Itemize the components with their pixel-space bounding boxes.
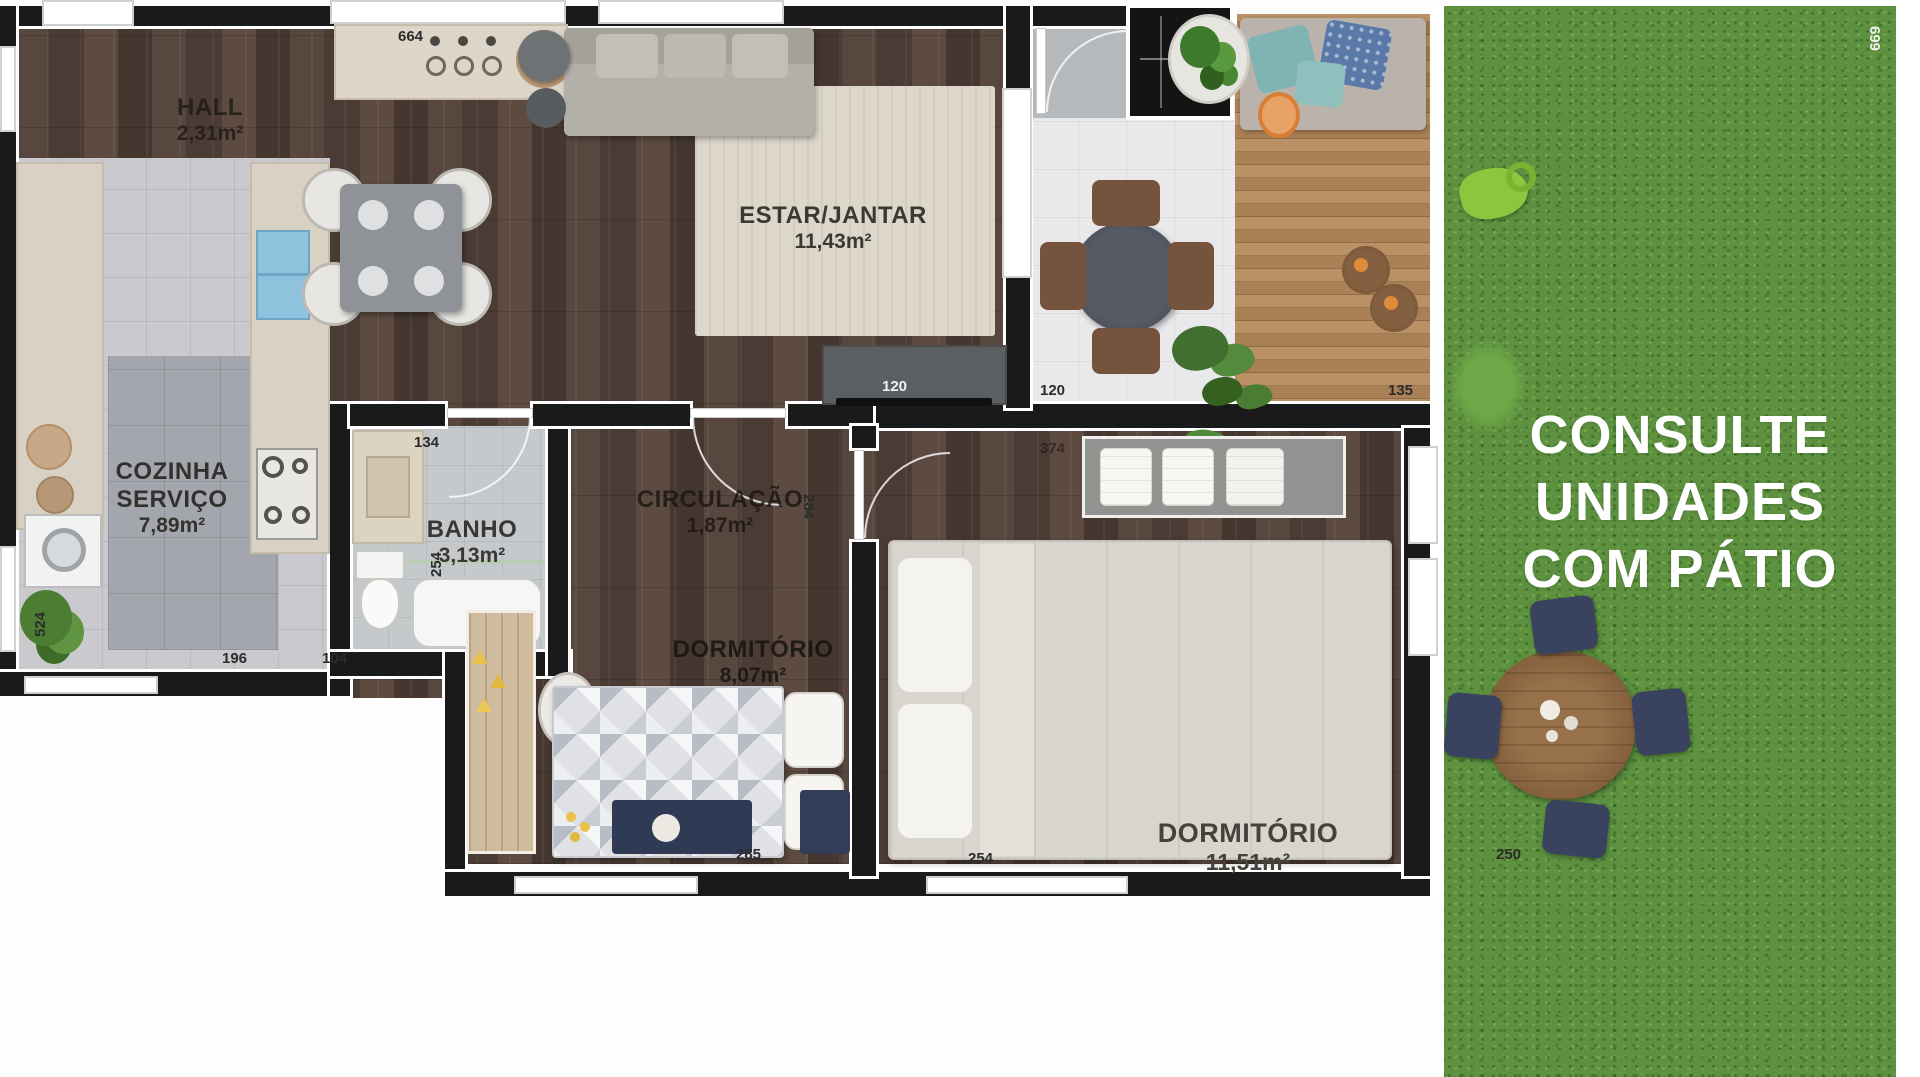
- garden-chair-north: [1529, 594, 1599, 655]
- dim-bath-bottom: 104: [322, 650, 347, 667]
- patio-chair-west: [1040, 242, 1086, 310]
- patio-table: [1072, 222, 1182, 332]
- wall-bath-top-left: [350, 404, 445, 426]
- folded-clothes: [1162, 448, 1214, 506]
- stove-burner: [292, 506, 310, 524]
- dim-patio-grass: 250: [1496, 846, 1521, 863]
- daybed-tray: [1258, 92, 1300, 138]
- room-name-kitchen-2: SERVIÇO: [92, 486, 252, 514]
- patio-chair-north: [1092, 180, 1160, 226]
- garden-chair-south: [1541, 799, 1610, 859]
- room-name-living: ESTAR/JANTAR: [728, 202, 938, 230]
- dim-dorm2-door: 374: [1040, 440, 1065, 457]
- deck-cup: [1354, 258, 1368, 272]
- room-area-bedroom1: 8,07m²: [653, 664, 853, 688]
- dim-grass-right: 699: [1866, 26, 1883, 51]
- grass-plant-tuft: [1448, 338, 1528, 434]
- kitchen-bowl: [36, 476, 74, 514]
- dining-plate: [358, 266, 388, 296]
- shaft-line: [1160, 16, 1162, 108]
- room-area-bath: 3,13m²: [402, 544, 542, 568]
- duck-toys-icon: [566, 812, 576, 822]
- dim-service-wall: 524: [32, 612, 49, 637]
- sofa-cushion: [596, 34, 658, 78]
- wall-step: [445, 652, 465, 876]
- wall-dorm-divider-stub: [852, 426, 876, 448]
- room-label-circulation: CIRCULAÇÃO 1,87m²: [620, 486, 820, 538]
- dim-deck-edge: 135: [1388, 382, 1413, 399]
- room-name-hall: HALL: [150, 94, 270, 122]
- side-table: [518, 30, 570, 82]
- room-name-kitchen-1: COZINHA: [92, 458, 252, 486]
- dim-patio-floor: 120: [1040, 382, 1065, 399]
- bedroom2-blanket-fold: [980, 544, 1034, 856]
- room-label-bedroom2: DORMITÓRIO 11,51m²: [1098, 818, 1398, 876]
- toilet-bowl: [360, 578, 400, 630]
- bedroom1-pillow: [784, 692, 844, 768]
- dining-plate: [414, 200, 444, 230]
- window-laundry-bottom: [24, 676, 158, 694]
- window-bedroom2-right-a: [1408, 446, 1438, 544]
- room-area-circulation: 1,87m²: [620, 514, 820, 538]
- patio-chair-south: [1092, 328, 1160, 374]
- kitchen-sink-divider: [256, 273, 310, 276]
- kitchen-counter-left: [16, 162, 104, 530]
- tv: [836, 398, 992, 406]
- cooktop-burner: [454, 56, 474, 76]
- toilet-tank: [355, 550, 405, 580]
- tv-console: [822, 345, 1007, 405]
- dim-kitchen-bottom: 196: [222, 650, 247, 667]
- garden-chair-west: [1443, 692, 1502, 760]
- origami-decor-icon: [476, 698, 492, 712]
- bedroom2-pillow: [896, 702, 974, 840]
- side-table: [526, 88, 566, 128]
- room-name-bath: BANHO: [402, 516, 542, 544]
- deck-cup: [1384, 296, 1398, 310]
- folded-clothes: [1100, 448, 1152, 506]
- room-name-bedroom1: DORMITÓRIO: [653, 636, 853, 664]
- room-label-kitchen: COZINHA SERVIÇO 7,89m²: [92, 458, 252, 538]
- room-label-bedroom1: DORMITÓRIO 8,07m²: [653, 636, 853, 688]
- dim-dorm2-bottom: 254: [968, 850, 993, 867]
- bedroom1-desk: [800, 790, 850, 854]
- window-hall-top: [42, 0, 134, 26]
- cooktop-knob: [430, 36, 440, 46]
- garden-table: [1484, 650, 1636, 800]
- garden-table-dishware: [1564, 716, 1578, 730]
- wall-mid-a: [533, 404, 690, 426]
- window-living-patio: [1002, 88, 1032, 278]
- window-hall-left: [0, 46, 16, 132]
- consulte-line-2: UNIDADES: [1458, 469, 1902, 536]
- dining-table: [340, 184, 462, 312]
- origami-decor-icon: [472, 650, 488, 664]
- stove-burner: [264, 506, 282, 524]
- bedroom2-door-leaf: [854, 450, 864, 540]
- dim-tv-console: 120: [882, 378, 907, 395]
- dim-bath-door: 134: [414, 434, 439, 451]
- window-bedroom2-bottom: [926, 876, 1128, 894]
- cooktop-knob: [486, 36, 496, 46]
- watering-can-handle-icon: [1506, 162, 1536, 192]
- room-name-circulation: CIRCULAÇÃO: [620, 486, 820, 514]
- kitchen-bowl: [26, 424, 72, 470]
- room-label-bath: BANHO 3,13m²: [402, 516, 542, 568]
- wall-dorm2-top: [876, 404, 1430, 428]
- stove-burner: [292, 458, 308, 474]
- patio-chair-east: [1168, 242, 1214, 310]
- consulte-line-3: COM PÁTIO: [1458, 536, 1902, 603]
- stove-burner: [262, 456, 284, 478]
- room-area-bedroom2: 11,51m²: [1098, 849, 1398, 876]
- floor-plan-canvas: CONSULTE UNIDADES COM PÁTIO 699 250 254: [0, 0, 1920, 1077]
- bath-sink: [366, 456, 410, 518]
- washing-machine-drum: [42, 528, 86, 572]
- bedroom1-runner-plate: [652, 814, 680, 842]
- bedroom1-navy-runner: [612, 800, 752, 854]
- dining-plate: [358, 200, 388, 230]
- cooktop-knob: [458, 36, 468, 46]
- bedroom2-pillow: [896, 556, 974, 694]
- wall-bath-right: [548, 404, 568, 676]
- cooktop-burner: [482, 56, 502, 76]
- window-living-top: [598, 0, 784, 24]
- room-label-living: ESTAR/JANTAR 11,43m²: [728, 202, 938, 254]
- dim-dorm1-bottom: 285: [736, 846, 761, 863]
- dining-plate: [414, 266, 444, 296]
- wall-dorm-divider: [852, 542, 876, 876]
- window-bedroom2-right-b: [1408, 558, 1438, 656]
- daybed-pillow-small: [1294, 60, 1346, 109]
- room-area-living: 11,43m²: [728, 230, 938, 254]
- garden-chair-east: [1631, 687, 1691, 756]
- sofa-cushion: [664, 34, 726, 78]
- planter-plant: [1180, 26, 1220, 68]
- window-bedroom1-bottom: [514, 876, 698, 894]
- entry-door-leaf: [1036, 28, 1046, 114]
- bedroom1-wardrobe: [466, 610, 536, 854]
- window-service-left: [0, 546, 16, 652]
- room-area-hall: 2,31m²: [150, 122, 270, 146]
- room-name-bedroom2: DORMITÓRIO: [1098, 818, 1398, 849]
- outside-white: [0, 698, 445, 1077]
- dim-counter-top: 664: [398, 28, 423, 45]
- garden-table-dishware: [1540, 700, 1560, 720]
- room-label-hall: HALL 2,31m²: [150, 94, 270, 146]
- grass-top-border: [1444, 0, 1920, 6]
- cooktop-burner: [426, 56, 446, 76]
- folded-clothes: [1226, 448, 1284, 506]
- room-area-kitchen: 7,89m²: [92, 514, 252, 538]
- garden-table-dishware: [1546, 730, 1558, 742]
- window-kitchen-top: [330, 0, 566, 24]
- origami-decor-icon: [490, 674, 506, 688]
- sofa-cushion: [732, 34, 788, 78]
